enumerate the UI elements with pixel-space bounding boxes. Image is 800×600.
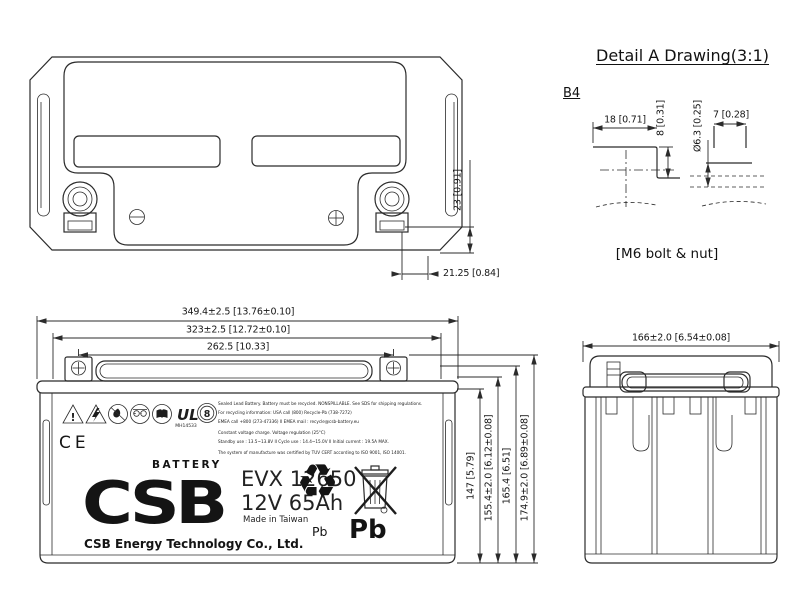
left-post-slot	[43, 420, 50, 505]
flathead-screw-icon	[130, 210, 145, 225]
dim-174: 174.9±2.0 [6.89±0.08]	[520, 415, 531, 522]
detail-ref-b4: B4	[563, 86, 580, 101]
dim-165: 165.4 [6.51]	[502, 448, 513, 504]
terminal-boss-left	[65, 357, 92, 381]
no-fire-circle-icon	[109, 405, 128, 424]
left-handle-slot	[38, 94, 50, 216]
eye-protection-circle-icon	[131, 405, 150, 424]
detail-a-view	[593, 122, 766, 207]
battery-technical-drawing: ! UL MH14533	[0, 0, 800, 600]
recycle-pb-icon: ♻	[296, 458, 339, 506]
dim-7: 7 [0.28]	[711, 110, 751, 121]
dim-155: 155.4±2.0 [6.12±0.08]	[484, 415, 495, 522]
svg-text:UL: UL	[177, 406, 199, 424]
svg-text:8: 8	[204, 409, 211, 420]
dim-6-3: Ø6.3 [0.25]	[693, 100, 704, 152]
fine-print-line: Constant voltage charge. Voltage regulat…	[218, 430, 450, 436]
read-manual-circle-icon	[153, 405, 172, 424]
csb-logo: CSB	[82, 468, 224, 537]
terminal-stub-side	[607, 362, 620, 387]
dim-166: 166±2.0 [6.54±0.08]	[630, 333, 732, 344]
dim-23: 23 [0.91]	[453, 169, 464, 211]
fine-print-line: Sealed Lead Battery. Battery must be rec…	[218, 401, 450, 407]
svg-text:MH14533: MH14533	[175, 423, 197, 429]
vent-plate-left	[74, 136, 220, 167]
phillips-screw-icon	[329, 211, 344, 226]
carry-handle-side	[620, 372, 750, 392]
side-view	[583, 341, 779, 563]
warning-triangle-icon: !	[63, 405, 83, 424]
dim-147: 147 [5.79]	[466, 452, 477, 500]
origin-label: Made in Taiwan	[243, 515, 308, 525]
electric-hazard-triangle-icon	[86, 405, 106, 423]
fine-print-block: Sealed Lead Battery. Battery must be rec…	[218, 401, 450, 460]
dim-262: 262.5 [10.33]	[205, 342, 271, 353]
pb-recycle-label: Pb	[312, 524, 327, 539]
ce-mark: CE	[59, 433, 90, 453]
rohs-circle-8-icon: 8	[198, 404, 217, 423]
dim-8: 8 [0.31]	[656, 100, 667, 136]
dim-349: 349.4±2.5 [13.76±0.10]	[180, 307, 297, 318]
dim-323: 323±2.5 [12.72±0.10]	[184, 325, 292, 336]
handle-hook-left	[633, 397, 649, 451]
pb-bin-label: Pb	[349, 515, 387, 545]
crossed-bin-pb-icon	[355, 466, 396, 514]
dim-21-25: 21.25 [0.84]	[443, 268, 499, 279]
fine-print-line: For recycling information: USA call (800…	[218, 410, 450, 416]
dim-18: 18 [0.71]	[602, 115, 648, 126]
terminal-boss-right	[380, 357, 407, 381]
handle-hook-right	[716, 397, 732, 451]
svg-text:!: !	[70, 411, 75, 424]
positive-terminal-top	[375, 182, 409, 232]
vent-plate-right	[252, 136, 400, 166]
detail-a-title: Detail A Drawing(3:1)	[596, 46, 769, 65]
fine-print-line: Standby use : 13.5~13.8V II Cycle use : …	[218, 439, 450, 445]
company-name: CSB Energy Technology Co., Ltd.	[84, 537, 303, 551]
ul-mark-icon: UL MH14533	[175, 406, 199, 429]
negative-terminal-top	[63, 182, 97, 232]
m6-caption: [M6 bolt & nut]	[616, 246, 718, 262]
top-view	[30, 57, 474, 280]
fine-print-line: EMEA call +800 (273-47336) II EMEA mail …	[218, 419, 450, 425]
